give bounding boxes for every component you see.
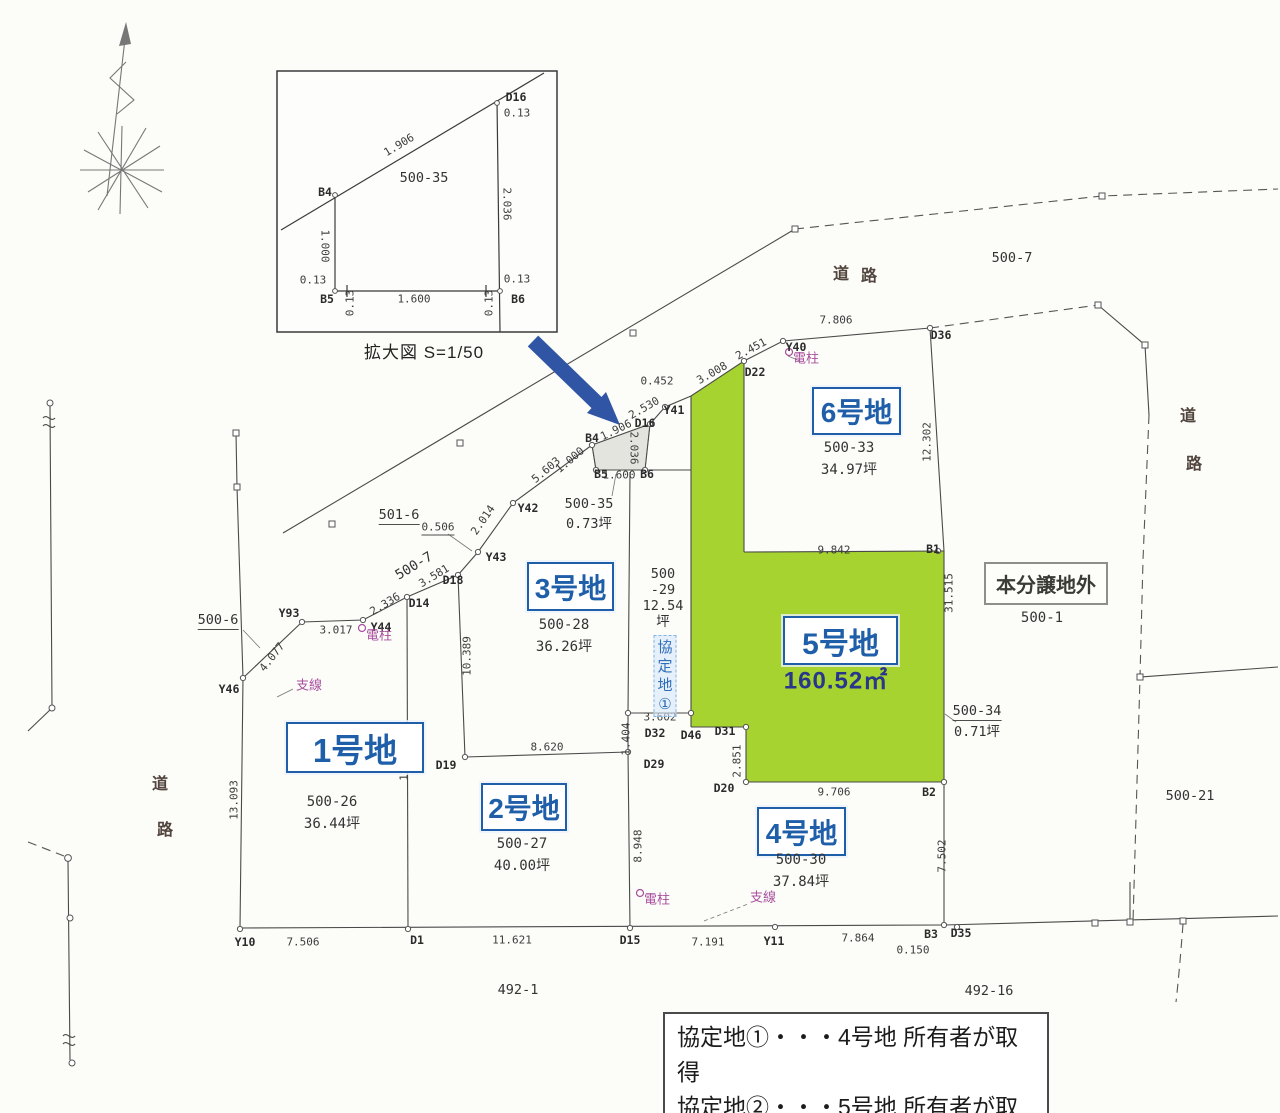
survey-point-label: B3 <box>924 927 938 941</box>
survey-point-label: D19 <box>436 758 457 772</box>
measurement-label: 0.13 <box>300 274 327 287</box>
inset-pointer-arrow <box>533 341 620 425</box>
survey-point-label: D32 <box>645 726 666 740</box>
survey-point-label: D1 <box>410 933 424 947</box>
lot-number-label: 0.71坪 <box>954 724 1000 740</box>
plot-info-1-gouchi: 500-2636.44坪 <box>304 791 360 835</box>
lot-number-label: 500-34 <box>953 703 1002 721</box>
survey-point-label: Y43 <box>486 550 507 564</box>
plot-label-5-gouchi: 5号地 <box>783 616 898 665</box>
lot-number-label: 500-21 <box>1166 788 1215 804</box>
road-label: 道 <box>1180 402 1196 426</box>
lot-number-label: 500-35 <box>565 496 614 512</box>
measurement-label: 12.302 <box>921 422 934 462</box>
survey-point-label: D15 <box>620 933 641 947</box>
measurement-label: 1.600 <box>397 293 430 306</box>
utility-label: 電柱 <box>366 625 392 644</box>
plot-info-4-gouchi: 500-3037.84坪 <box>773 849 829 893</box>
plot-info-outside: 500-1 <box>1021 607 1063 629</box>
survey-point-label: B6 <box>511 292 525 306</box>
survey-point-label: B1 <box>926 542 940 556</box>
measurement-label: 0.150 <box>896 944 929 957</box>
survey-point-label: D14 <box>409 596 430 610</box>
measurement-label: 0.13 <box>344 290 357 317</box>
measurement-label: 9.842 <box>817 544 850 557</box>
measurement-label: 7.864 <box>841 932 874 945</box>
survey-point-label: D16 <box>635 416 656 430</box>
plot-info-6-gouchi: 500-3334.97坪 <box>821 437 877 481</box>
measurement-label: 0.452 <box>640 375 673 388</box>
agreement-note-line-1: 協定地①・・・4号地 所有者が取得 <box>677 1020 1035 1090</box>
utility-label: 電柱 <box>793 348 819 367</box>
measurement-label: 0.13 <box>504 107 531 120</box>
measurement-label: 0.13 <box>483 290 496 317</box>
survey-point-label: Y41 <box>664 403 685 417</box>
measurement-label: 9.706 <box>817 786 850 799</box>
measurement-label: 8.620 <box>530 741 563 754</box>
road-label: 道 <box>152 770 168 794</box>
measurement-label: 7.806 <box>819 314 852 327</box>
lot-number-label: 500-7 <box>992 250 1033 266</box>
measurement-label: 0.13 <box>504 273 531 286</box>
utility-label: 電柱 <box>644 889 670 908</box>
survey-point-label: Y11 <box>764 934 785 948</box>
survey-point-label: D36 <box>931 328 952 342</box>
survey-point-label: D22 <box>745 365 766 379</box>
measurement-label: 1.404 <box>620 722 633 755</box>
road-label: 道 <box>833 260 849 284</box>
survey-point-label: B6 <box>640 467 654 481</box>
measurement-label: 2.851 <box>731 744 744 777</box>
road-label: 路 <box>861 262 877 286</box>
measurement-label: 31.515 <box>943 573 956 613</box>
utility-label: 支線 <box>296 675 322 694</box>
survey-point-label: Y42 <box>518 501 539 515</box>
plot-info-3-gouchi: 500-2836.26坪 <box>536 614 592 658</box>
survey-point-label: B5 <box>594 467 608 481</box>
plot-info-2-gouchi: 500-2740.00坪 <box>494 833 550 877</box>
survey-point-label: D16 <box>506 90 527 104</box>
survey-point-label: B2 <box>922 785 936 799</box>
survey-point-label: B4 <box>318 185 332 199</box>
plot-label-1-gouchi: 1号地 <box>286 722 424 773</box>
plot-label-outside: 本分譲地外 <box>984 562 1108 605</box>
lot-number-label: 500-2912.54坪 <box>643 566 684 630</box>
lot-number-label: 500-35 <box>400 170 449 186</box>
measurement-label: 0.506 <box>421 521 454 536</box>
survey-point-label: Y93 <box>279 606 300 620</box>
measurement-label: 7.502 <box>936 839 949 872</box>
agreement-note-box: 協定地①・・・4号地 所有者が取得 協定地②・・・5号地 所有者が取得 <box>663 1012 1049 1113</box>
plot-label-2-gouchi: 2号地 <box>481 783 567 831</box>
measurement-label: 2.036 <box>501 187 514 220</box>
survey-point-label: B4 <box>585 431 599 445</box>
measurement-label: 11.621 <box>492 934 532 947</box>
agreement-strip-label: 協定地① <box>653 635 676 717</box>
measurement-label: 7.506 <box>286 936 319 949</box>
lot-number-label: 0.73坪 <box>566 516 612 532</box>
measurement-label: 2.036 <box>628 431 641 464</box>
lot-number-label: 492-1 <box>498 982 539 998</box>
survey-point-label: D46 <box>681 728 702 742</box>
survey-point-label: Y46 <box>219 682 240 696</box>
inset-caption: 拡大図 S=1/50 <box>364 338 484 363</box>
survey-point-label: D31 <box>715 724 736 738</box>
survey-point-label: D20 <box>714 781 735 795</box>
measurement-label: 13.093 <box>228 780 241 820</box>
survey-point-label: B5 <box>320 292 334 306</box>
survey-point-label: Y10 <box>235 935 256 949</box>
measurement-label: 7.191 <box>691 936 724 949</box>
lot-number-label: 501-6 <box>379 507 420 525</box>
measurement-label: 1.000 <box>319 229 332 262</box>
plot-label-6-gouchi: 6号地 <box>812 387 901 435</box>
plot-label-3-gouchi: 3号地 <box>527 562 614 611</box>
measurement-label: 8.948 <box>632 829 645 862</box>
road-label: 路 <box>1186 450 1202 474</box>
measurement-label: 3.017 <box>319 624 352 637</box>
survey-point-label: D35 <box>951 926 972 940</box>
agreement-note-line-2: 協定地②・・・5号地 所有者が取得 <box>677 1090 1035 1113</box>
plot-area-5-gouchi: 160.52㎡ <box>784 661 888 696</box>
road-label: 路 <box>157 816 173 840</box>
measurement-label: 10.389 <box>461 636 474 676</box>
land-subdivision-plan: 拡大図 S=1/50 協定地①・・・4号地 所有者が取得 協定地②・・・5号地 … <box>0 0 1280 1113</box>
survey-point-label: D18 <box>443 573 464 587</box>
lot-number-label: 492-16 <box>965 983 1014 999</box>
survey-point-label: D29 <box>644 757 665 771</box>
north-arrow <box>80 22 164 214</box>
lot-number-label: 500-6 <box>198 612 239 630</box>
